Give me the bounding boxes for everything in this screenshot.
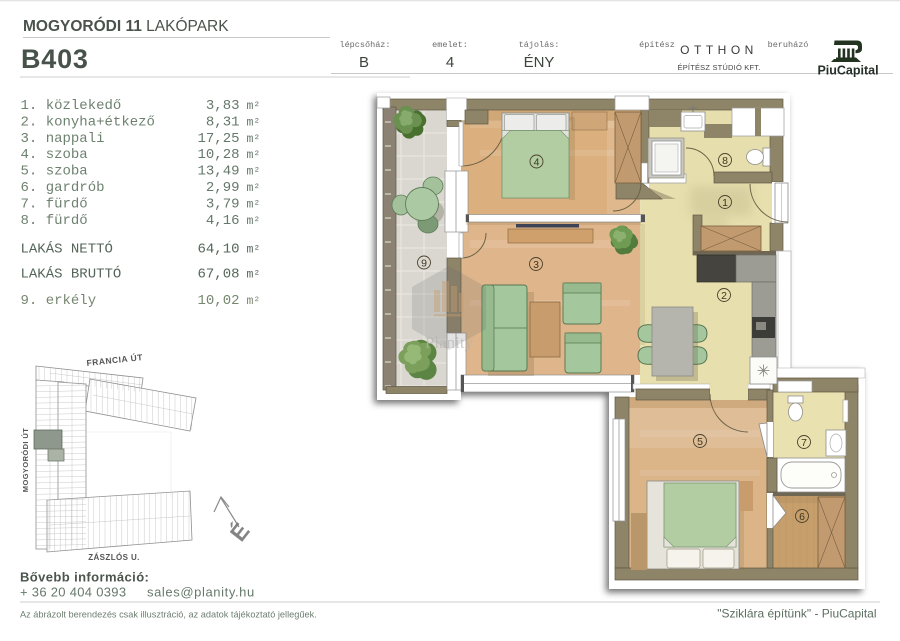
svg-text:Az ábrázolt berendezés csak il: Az ábrázolt berendezés csak illusztráció… [20, 610, 317, 620]
svg-text:10,02: 10,02 [197, 293, 239, 309]
svg-text:1: 1 [722, 197, 728, 209]
svg-text:m²: m² [247, 295, 261, 308]
svg-text:LAKÁS BRUTTÓ: LAKÁS BRUTTÓ [21, 265, 122, 283]
svg-text:m²: m² [247, 269, 261, 282]
svg-text:Bővebb információ:: Bővebb információ: [20, 570, 149, 585]
svg-text:4,16: 4,16 [206, 213, 240, 229]
svg-text:m²: m² [247, 149, 261, 162]
svg-text:MOGYORÓDI ÚT: MOGYORÓDI ÚT [21, 428, 30, 492]
svg-text:m²: m² [247, 116, 261, 129]
svg-text:8,31: 8,31 [206, 114, 240, 130]
svg-text:6. gardrób: 6. gardrób [21, 180, 105, 196]
svg-text:m²: m² [247, 198, 261, 211]
svg-text:+ 36 20 404 0393: + 36 20 404 0393 [20, 585, 126, 600]
svg-text:2. konyha+étkező: 2. konyha+étkező [21, 114, 155, 130]
svg-text:7: 7 [801, 437, 807, 449]
svg-text:64,10: 64,10 [197, 241, 239, 257]
svg-text:2,99: 2,99 [206, 180, 240, 196]
svg-text:építész: építész [639, 40, 675, 50]
svg-text:B: B [359, 54, 369, 71]
svg-text:ÉNY: ÉNY [524, 54, 555, 71]
svg-text:B403: B403 [21, 44, 89, 74]
svg-text:m²: m² [247, 100, 261, 113]
svg-text:5. szoba: 5. szoba [21, 164, 88, 180]
svg-text:m²: m² [247, 166, 261, 179]
svg-text:6: 6 [799, 511, 805, 523]
svg-text:17,25: 17,25 [197, 131, 239, 147]
svg-text:9. erkély: 9. erkély [21, 293, 97, 309]
svg-text:lépcsőház:: lépcsőház: [339, 40, 390, 50]
svg-text:m²: m² [247, 215, 261, 228]
svg-text:"Sziklára építünk" - PiuCapita: "Sziklára építünk" - PiuCapital [717, 607, 876, 621]
svg-text:67,08: 67,08 [197, 267, 239, 283]
svg-text:Planity: Planity [425, 333, 474, 352]
svg-text:ZÁSZLÓS U.: ZÁSZLÓS U. [88, 553, 140, 562]
svg-text:tájolás:: tájolás: [519, 40, 560, 50]
svg-text:3,79: 3,79 [206, 196, 240, 212]
svg-text:3,83: 3,83 [206, 98, 240, 114]
svg-text:3. nappali: 3. nappali [21, 131, 105, 147]
svg-text:1. közlekedő: 1. közlekedő [21, 98, 122, 114]
svg-text:PiuCapital: PiuCapital [817, 64, 878, 78]
svg-text:4. szoba: 4. szoba [21, 147, 88, 163]
svg-text:m²: m² [247, 133, 261, 146]
svg-text:9: 9 [421, 257, 427, 269]
svg-text:OTTHON: OTTHON [680, 43, 758, 57]
svg-text:m²: m² [247, 182, 261, 195]
svg-text:8: 8 [722, 155, 728, 167]
svg-text:ÉPÍTÉSZ STÚDIÓ KFT.: ÉPÍTÉSZ STÚDIÓ KFT. [678, 63, 761, 72]
svg-text:2: 2 [721, 290, 727, 302]
svg-text:5: 5 [697, 436, 703, 448]
svg-text:sales@planity.hu: sales@planity.hu [147, 585, 255, 600]
svg-text:8. fürdő: 8. fürdő [21, 213, 88, 229]
svg-text:3: 3 [533, 259, 539, 271]
svg-text:emelet:: emelet: [432, 40, 468, 50]
svg-text:4: 4 [446, 54, 454, 71]
svg-text:7. fürdő: 7. fürdő [21, 196, 88, 212]
svg-text:4: 4 [534, 156, 540, 168]
svg-text:10,28: 10,28 [197, 147, 239, 163]
svg-text:beruházó: beruházó [768, 40, 809, 50]
svg-text:13,49: 13,49 [197, 164, 239, 180]
svg-text:m²: m² [247, 243, 261, 256]
svg-text:LAKÁS NETTÓ: LAKÁS NETTÓ [21, 239, 113, 257]
svg-text:MOGYORÓDI 11 LAKÓPARK: MOGYORÓDI 11 LAKÓPARK [23, 17, 229, 35]
